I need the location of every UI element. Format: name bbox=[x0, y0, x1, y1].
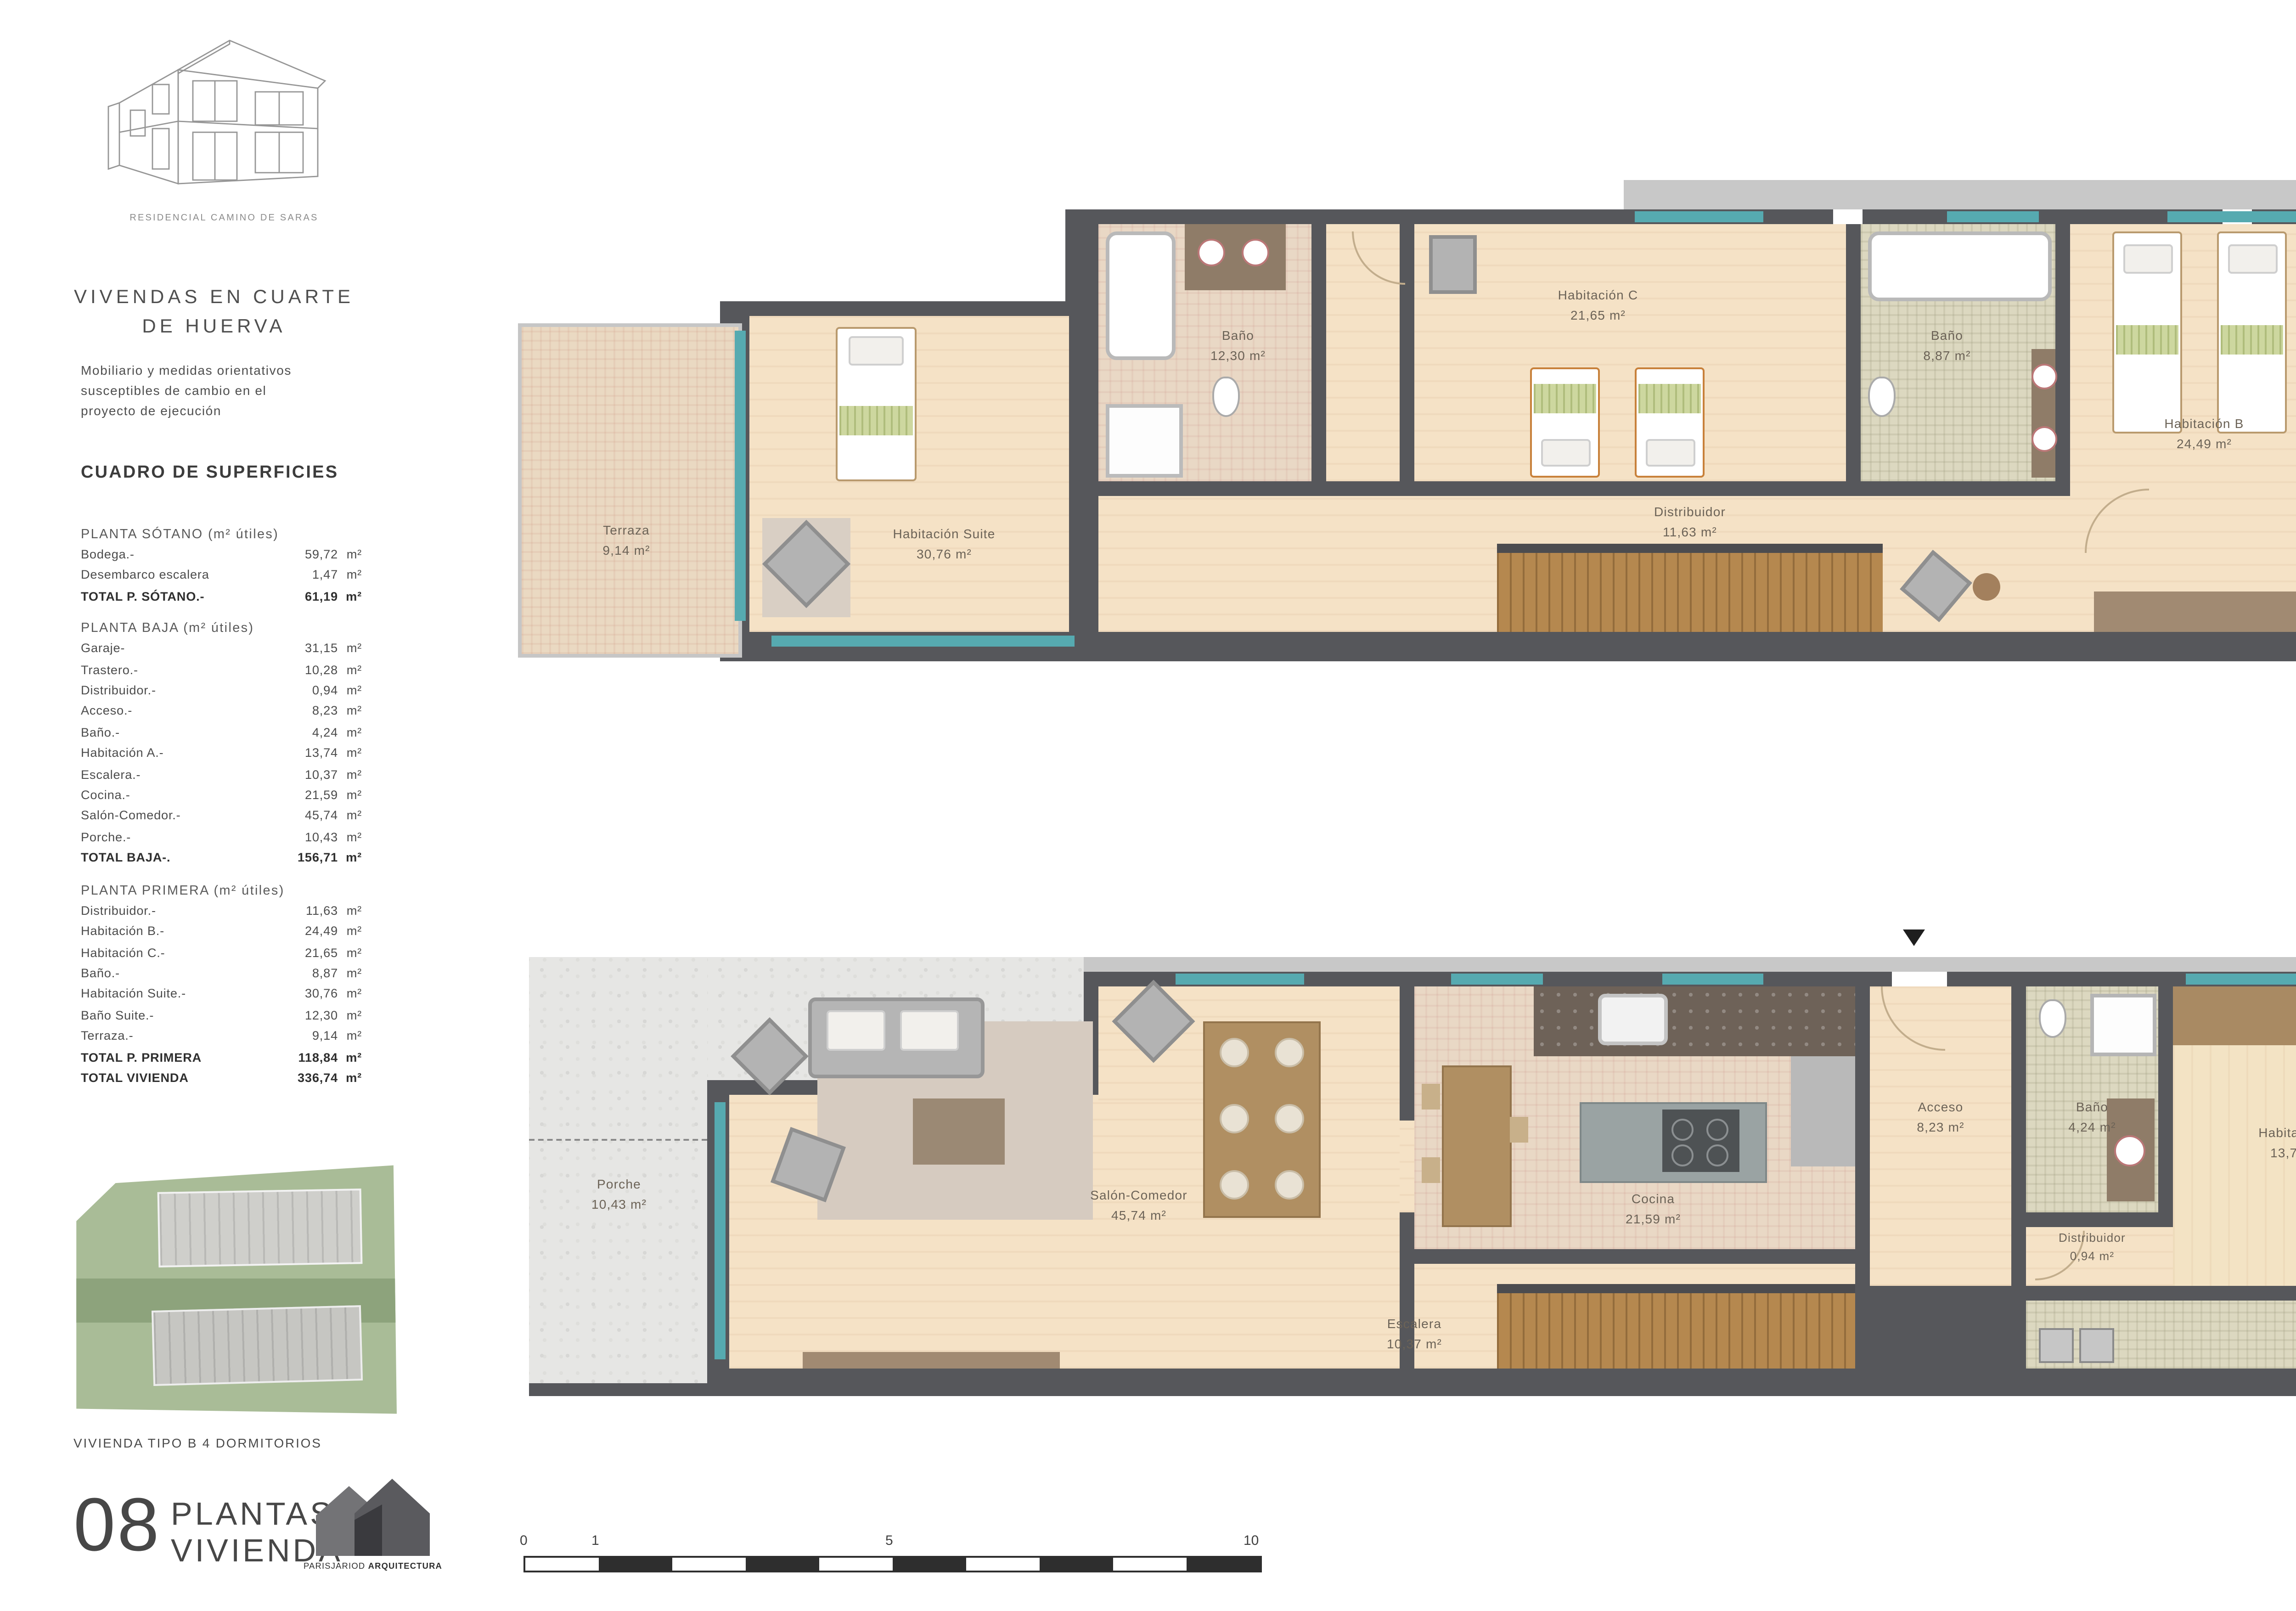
scale-label-10: 10 bbox=[1244, 1532, 1259, 1549]
toilet bbox=[1868, 377, 1896, 417]
breakfast-table bbox=[1442, 1065, 1512, 1227]
room-label-escalera: Escalera10,37 m² bbox=[1337, 1315, 1491, 1357]
plan-sheet: RESIDENCIAL CAMINO DE SARAS VIVENDAS EN … bbox=[0, 0, 2296, 1611]
window-glazing bbox=[735, 331, 746, 621]
ground-floor-plan: Porche10,43 m² Salón-Comedor45,74 m² Coc… bbox=[0, 808, 2296, 1580]
room-label-terraza: Terraza9,14 m² bbox=[544, 522, 709, 563]
room-label-cocina: Cocina21,59 m² bbox=[1552, 1190, 1754, 1232]
bed bbox=[2112, 231, 2182, 434]
bed bbox=[2217, 231, 2287, 434]
desk bbox=[2173, 986, 2296, 1045]
window-glazing bbox=[2167, 211, 2296, 222]
window-glazing bbox=[771, 636, 1075, 647]
scale-label-1: 1 bbox=[591, 1532, 599, 1549]
room-label-salon: Salón-Comedor45,74 m² bbox=[1029, 1187, 1249, 1228]
sofa bbox=[808, 997, 985, 1078]
cooktop bbox=[1662, 1110, 1739, 1172]
bathtub bbox=[1106, 231, 1176, 360]
room-label-bano-pb: Baño4,24 m² bbox=[2026, 1098, 2158, 1140]
room-label-suite: Habitación Suite30,76 m² bbox=[830, 525, 1058, 567]
room-label-bano-suite: Baño12,30 m² bbox=[1172, 327, 1304, 368]
bed bbox=[836, 327, 917, 481]
window-glazing bbox=[2186, 974, 2296, 985]
window-glazing bbox=[1451, 974, 1543, 985]
stairs bbox=[1497, 553, 1883, 632]
armchair bbox=[1429, 235, 1477, 294]
side-table bbox=[1973, 573, 2000, 601]
room-porche bbox=[529, 957, 707, 1383]
room-label-porche: Porche10,43 m² bbox=[551, 1176, 687, 1217]
stairs bbox=[1497, 1293, 1855, 1369]
window-glazing bbox=[1176, 974, 1304, 985]
room-label-hab-b: Habitación B24,49 m² bbox=[2076, 415, 2296, 456]
room-label-hab-c: Habitación C21,65 m² bbox=[1469, 287, 1727, 328]
room-label-distribuidor-pb: Distribuidor0,94 m² bbox=[2015, 1231, 2169, 1269]
bed bbox=[1530, 367, 1600, 478]
window-glazing bbox=[1635, 211, 1763, 222]
shower bbox=[1106, 404, 1183, 478]
kitchen-sink bbox=[1598, 994, 1668, 1045]
kitchen-counter bbox=[1534, 986, 1855, 1056]
roof-overhang-line bbox=[529, 1139, 707, 1141]
exterior-band bbox=[1624, 180, 2296, 209]
shower bbox=[2090, 994, 2156, 1056]
scale-label-5: 5 bbox=[885, 1532, 893, 1549]
window-glazing bbox=[715, 1102, 726, 1359]
coffee-table bbox=[913, 1098, 1005, 1165]
room-label-trastero: Trastero10,28 m² bbox=[2252, 1304, 2296, 1346]
room-label-hab-a: Habitación A13,74 m² bbox=[2210, 1124, 2296, 1166]
washer bbox=[2039, 1328, 2074, 1363]
window-glazing bbox=[1947, 211, 2039, 222]
window-glazing bbox=[1662, 974, 1763, 985]
room-label-distribuidor: Distribuidor11,63 m² bbox=[1561, 503, 1818, 545]
toilet bbox=[1212, 377, 1240, 417]
bed bbox=[1635, 367, 1705, 478]
room-label-acceso: Acceso8,23 m² bbox=[1874, 1098, 2008, 1140]
washer bbox=[2079, 1328, 2114, 1363]
room-terraza bbox=[518, 323, 742, 658]
exterior-band bbox=[1084, 957, 2296, 972]
scale-label-0: 0 bbox=[520, 1532, 528, 1549]
sink bbox=[2114, 1135, 2145, 1166]
surface-row: Cocina.-21,59m² bbox=[81, 786, 362, 807]
toilet bbox=[2039, 999, 2066, 1038]
scale-bar-segments bbox=[523, 1556, 1262, 1572]
room-label-bano: Baño8,87 m² bbox=[1877, 327, 2017, 368]
scale-bar: 0 1 5 10 bbox=[520, 1532, 1291, 1576]
room-habitacion-c bbox=[1414, 224, 1846, 481]
entrance-marker-icon bbox=[1903, 929, 1925, 946]
first-floor-plan: Terraza9,14 m² Habitación Suite30,76 m² … bbox=[0, 0, 2296, 772]
bathtub bbox=[1868, 231, 2052, 301]
